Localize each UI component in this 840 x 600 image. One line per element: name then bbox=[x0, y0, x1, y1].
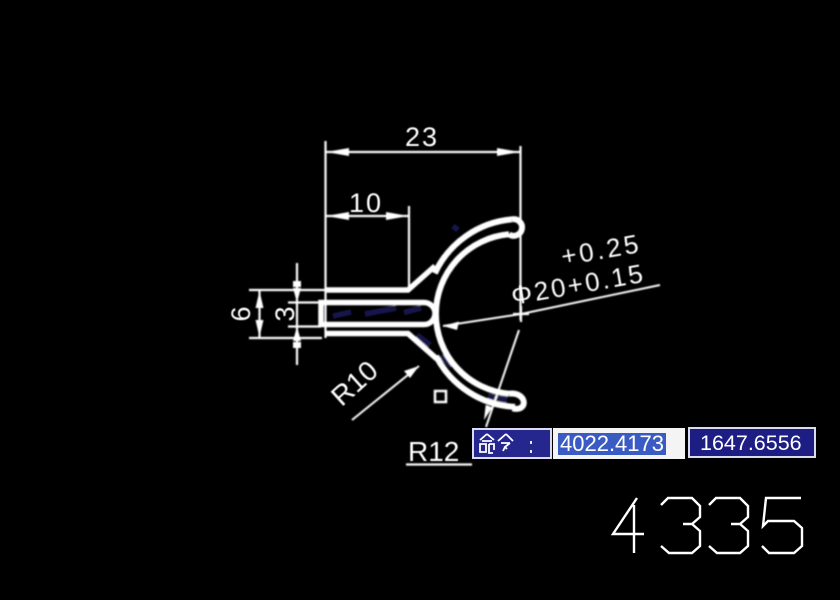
svg-text:23: 23 bbox=[405, 122, 439, 152]
svg-text:6: 6 bbox=[226, 306, 256, 321]
svg-text:4022.4173: 4022.4173 bbox=[560, 431, 664, 456]
svg-text:3: 3 bbox=[270, 306, 300, 321]
svg-text:R12: R12 bbox=[408, 436, 459, 467]
svg-text:R10: R10 bbox=[325, 354, 384, 411]
svg-text:10: 10 bbox=[349, 188, 383, 218]
svg-text:1647.6556: 1647.6556 bbox=[700, 431, 802, 455]
